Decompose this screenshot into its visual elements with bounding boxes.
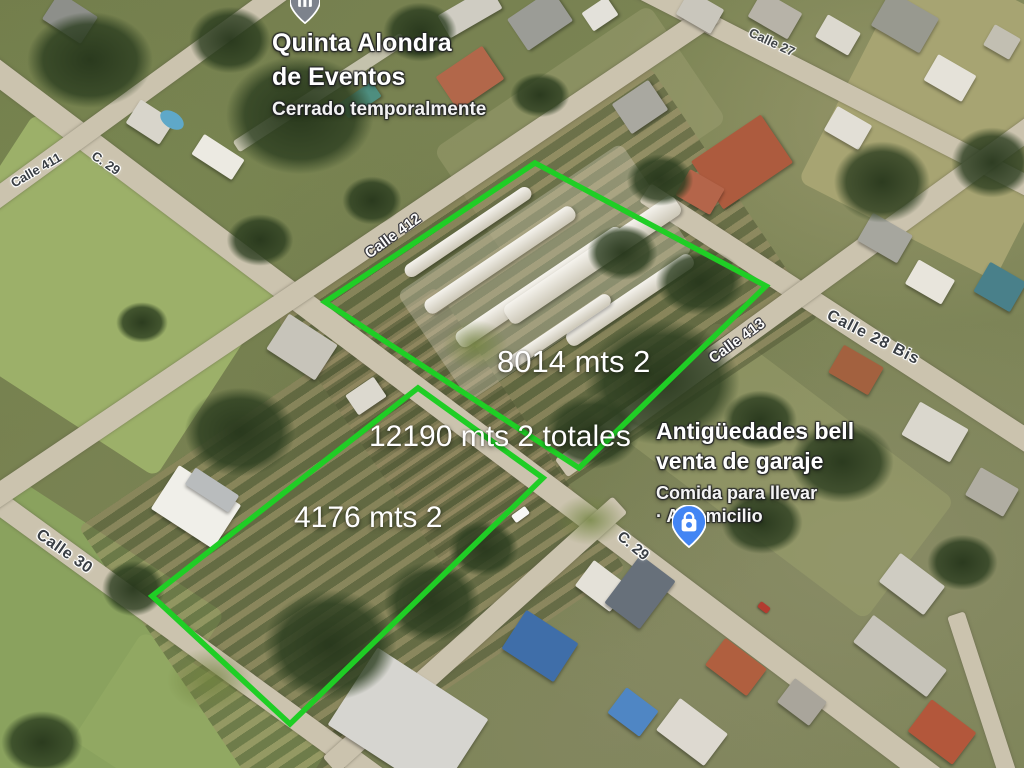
- parcel-area-label-4176: 4176 mts 2: [294, 501, 442, 535]
- venue-name-line2: de Eventos: [272, 60, 486, 94]
- shop-name-line1: Antigüedades bell: [656, 416, 854, 446]
- tree-canopy: [615, 145, 705, 215]
- venue-status: Cerrado temporalmente: [272, 99, 486, 121]
- tree-canopy: [500, 65, 580, 125]
- tree-canopy: [215, 205, 305, 275]
- tree-canopy: [91, 551, 176, 626]
- parcel-area-label-8014: 8014 mts 2: [497, 344, 650, 380]
- parcel-area-label-total: 12190 mts 2 totales: [369, 420, 631, 454]
- event-venue-pin-icon[interactable]: [290, 0, 320, 24]
- tree-canopy: [175, 0, 285, 85]
- tree-canopy: [937, 115, 1024, 210]
- shopping-bag-pin-icon[interactable]: [672, 505, 706, 548]
- shrubs: [150, 635, 270, 725]
- tree-canopy: [165, 372, 315, 492]
- shop-name-line2: venta de garaje: [656, 446, 854, 476]
- satellite-map-canvas[interactable]: Calle 411 C. 29 Calle 27 Calle 412 Calle…: [0, 0, 1024, 768]
- venue-name-line1: Quinta Alondra: [272, 26, 486, 60]
- tree-canopy: [575, 215, 670, 290]
- tree-canopy: [107, 295, 177, 350]
- tree-canopy: [0, 700, 97, 768]
- tree-canopy: [817, 127, 947, 237]
- tree-canopy: [436, 511, 531, 586]
- shop-services-line1: Comida para llevar: [656, 482, 854, 505]
- venue-label[interactable]: Quinta Alondra de Eventos Cerrado tempor…: [272, 26, 486, 121]
- tree-canopy: [5, 0, 175, 125]
- tree-canopy: [915, 525, 1010, 600]
